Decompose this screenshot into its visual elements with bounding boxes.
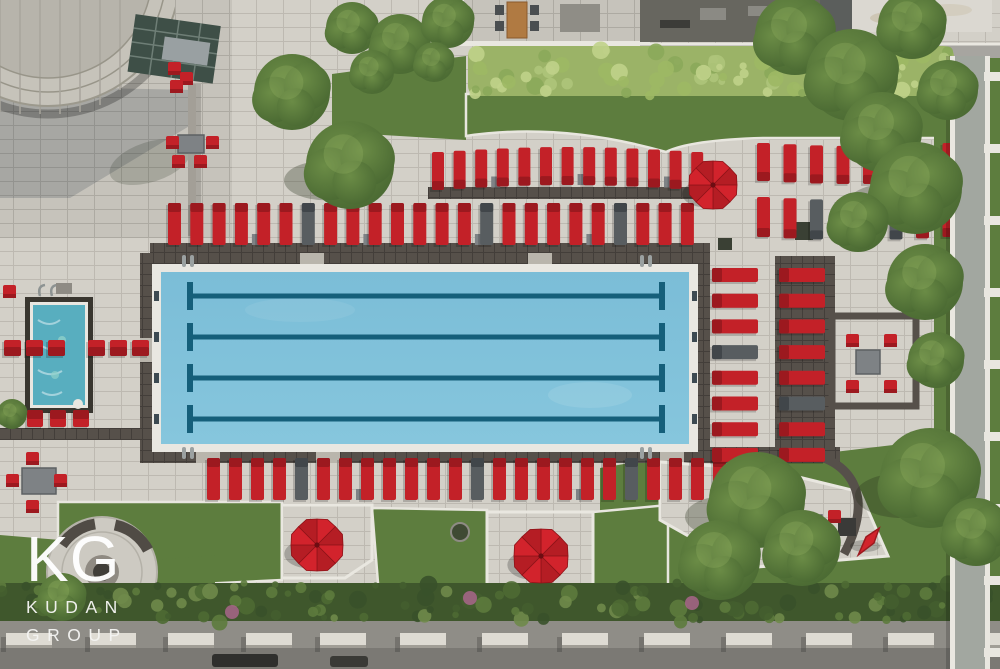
shrub [295, 582, 306, 593]
shrub [874, 592, 882, 600]
shrub [897, 584, 910, 597]
lounger-chair [581, 147, 595, 187]
shrub [285, 590, 292, 597]
lounger-chair [657, 203, 672, 247]
shrub [309, 590, 322, 603]
lounger-chair [646, 150, 660, 190]
shrub [255, 606, 267, 618]
grass-tuft [472, 85, 480, 93]
shrub [176, 598, 186, 608]
dining-chair [166, 136, 179, 149]
lounger-chair [24, 340, 43, 358]
lounger-chair [603, 148, 617, 188]
dining-chair [846, 334, 859, 347]
lounger-chair [535, 458, 550, 502]
lounger-chair [777, 397, 825, 413]
lounger-chair [601, 458, 616, 502]
scene-canvas [0, 0, 1000, 669]
dining-chair [26, 500, 39, 513]
grass-tuft [645, 91, 654, 100]
dining-chair [3, 285, 16, 298]
walkway-balcony [984, 432, 1000, 441]
lounger-chair [634, 203, 649, 247]
lounger-chair [777, 268, 825, 284]
grass-tuft [468, 46, 484, 62]
shrub [271, 610, 282, 621]
lounger-chair [782, 144, 797, 184]
walkway-balcony [984, 288, 1000, 297]
lounger-chair [293, 458, 308, 502]
dining-chair [206, 136, 219, 149]
lounger-chair [255, 203, 270, 247]
shrub [719, 602, 730, 613]
grass-tuft [540, 85, 552, 97]
lounger-chair [545, 203, 560, 247]
dining-chair [828, 510, 841, 523]
lounger-chair [777, 422, 825, 438]
grass-tuft [546, 61, 560, 75]
grass-tuft [696, 65, 711, 80]
shrub [399, 582, 406, 589]
shrub [835, 612, 843, 620]
potted-plant [451, 523, 469, 541]
walkway-balcony [984, 648, 1000, 657]
shrub [849, 611, 861, 623]
walkway-balcony [984, 72, 1000, 81]
patio-table [856, 350, 880, 374]
shrub [132, 588, 140, 596]
dining-chair [172, 155, 185, 168]
shrub [452, 605, 460, 613]
lounger-chair [501, 203, 516, 247]
lounger-chair [808, 199, 823, 241]
lounger-chair [403, 458, 418, 502]
lounger-chair [777, 319, 825, 335]
wooden-table [507, 2, 527, 38]
shrub [359, 613, 368, 622]
shrub [475, 597, 491, 613]
shrub [427, 606, 434, 613]
lounger-chair [495, 148, 509, 188]
lounger-chair [456, 203, 471, 247]
lounger-chair [411, 203, 426, 247]
parapet [455, 41, 650, 46]
shrub [616, 581, 630, 595]
dining-chair [884, 380, 897, 393]
shrub [774, 613, 784, 623]
shrub [745, 601, 759, 615]
lounger-chair [710, 268, 758, 284]
flowering-bush [463, 591, 477, 605]
lounger-chair [478, 203, 493, 247]
flowering-bush [685, 596, 699, 610]
grass-tuft [473, 61, 487, 75]
walkway-balcony [984, 216, 1000, 225]
grass-tuft [538, 50, 551, 63]
lounger-chair [777, 371, 825, 387]
shrub [230, 583, 239, 592]
shrub [452, 612, 459, 619]
shrub [537, 613, 549, 625]
dining-chair [54, 474, 67, 487]
lounger-chair [782, 198, 797, 240]
lounger-chair [710, 294, 758, 310]
lounger-chair [755, 197, 770, 239]
grass-tuft [658, 61, 674, 77]
grass-tuft [490, 77, 501, 88]
shrub [198, 611, 209, 622]
aerial-photo-pool-deck: KG KUDAN GROUP [0, 0, 1000, 669]
shrub [759, 606, 774, 621]
shrub [165, 613, 171, 619]
lounger-chair [227, 458, 242, 502]
lounger-chair [166, 203, 181, 247]
shrub [559, 596, 571, 608]
grass-tuft [561, 78, 572, 89]
dining-chair [168, 62, 181, 75]
grass-tuft [621, 88, 631, 98]
lounger-chair [710, 371, 758, 387]
lounger-chair [689, 458, 704, 502]
lounger-chair [516, 148, 530, 188]
walkway-balcony [984, 576, 1000, 585]
lounger-chair [447, 458, 462, 502]
grass-tuft [592, 42, 610, 60]
lounger-chair [205, 458, 220, 502]
lounger-chair [46, 340, 65, 358]
walkway-balcony [984, 144, 1000, 153]
shrub [688, 613, 698, 623]
lounger-chair [188, 203, 203, 247]
lounger-chair [2, 340, 21, 358]
shrub [824, 584, 838, 598]
lounger-chair [612, 203, 627, 247]
shrub [154, 582, 162, 590]
lounger-chair [337, 458, 352, 502]
lounger-chair [513, 458, 528, 502]
shrub [884, 594, 899, 609]
shrub [670, 600, 688, 618]
spa-cover [73, 399, 83, 409]
shrub [939, 602, 946, 609]
lounger-chair [579, 458, 594, 502]
lounger-chair [668, 151, 682, 191]
shrub [882, 616, 890, 624]
lounger-chair [679, 203, 694, 247]
lounger-chair [491, 458, 506, 502]
shrub [166, 587, 176, 597]
lounger-chair [777, 345, 825, 361]
lounger-chair [430, 152, 444, 192]
watermark-line2: GROUP [26, 625, 128, 646]
grass-tuft [502, 75, 516, 89]
shrub [902, 612, 911, 621]
shrub [441, 586, 453, 598]
lounger-chair [367, 203, 382, 247]
shrub [325, 590, 335, 600]
lounger-chair [130, 340, 149, 358]
lounger-chair [381, 458, 396, 502]
shrub [729, 602, 744, 617]
grass-tuft [768, 71, 784, 87]
lounger-chair [300, 203, 315, 247]
lounger-chair [777, 294, 825, 310]
shrub [522, 603, 534, 615]
lounger-chair [710, 345, 758, 361]
shrub [611, 599, 628, 616]
lounger-chair [322, 203, 337, 247]
shrub [780, 594, 797, 611]
lounger-chair [624, 148, 638, 188]
shrub [917, 605, 931, 619]
grass-tuft [521, 71, 532, 82]
lounger-chair [86, 340, 105, 358]
dining-chair [170, 80, 183, 93]
grass-tuft [618, 76, 629, 87]
lounger-chair [48, 410, 66, 429]
shrub [151, 599, 163, 611]
shrub [349, 591, 367, 609]
shrub [272, 581, 279, 588]
dining-chair [194, 155, 207, 168]
lounger-chair [755, 143, 770, 183]
watermark-line1: KUDAN [26, 597, 128, 618]
lounger-chair [211, 203, 226, 247]
walkway-balcony [984, 360, 1000, 369]
lounger-chair [278, 203, 293, 247]
lounger-chair [344, 203, 359, 247]
lounger-chair [590, 203, 605, 247]
shrub [417, 589, 435, 607]
shrub [884, 582, 893, 591]
shrub [597, 603, 606, 612]
parked-car [330, 656, 368, 667]
lounger-chair [359, 458, 374, 502]
shrub [321, 614, 327, 620]
roof-units [560, 4, 600, 32]
grass-tuft [534, 66, 543, 75]
shrub [372, 582, 378, 588]
grass-tuft [719, 73, 727, 81]
grass-tuft [740, 62, 747, 69]
shrub [212, 615, 228, 631]
grass-tuft [733, 76, 743, 86]
grass-tuft [648, 43, 665, 60]
shrub [674, 615, 687, 628]
shrub [266, 587, 277, 598]
shrub [495, 591, 504, 600]
shrub [503, 581, 521, 599]
shrub [637, 585, 649, 597]
lounger-chair [452, 151, 466, 191]
grass-tuft [716, 64, 722, 70]
shrub [241, 580, 248, 587]
shrub [841, 581, 849, 589]
lounger-chair [523, 203, 538, 247]
shrub [330, 614, 337, 621]
lounger-chair [315, 458, 330, 502]
dining-chair [6, 474, 19, 487]
lounger-chair [249, 458, 264, 502]
shrub [308, 607, 318, 617]
shrub [635, 596, 650, 611]
dining-chair [26, 452, 39, 465]
lounger-chair [434, 203, 449, 247]
dining-chair [846, 380, 859, 393]
lounger-chair [389, 203, 404, 247]
flowering-bush [225, 605, 239, 619]
patio-table [178, 135, 204, 153]
lounger-chair [557, 458, 572, 502]
shrub [202, 583, 218, 599]
kudan-group-watermark: KG KUDAN GROUP [26, 529, 128, 646]
lounger-chair [808, 145, 823, 185]
dining-chair [884, 334, 897, 347]
lounger-chair [710, 319, 758, 335]
lounger-chair [469, 458, 484, 502]
grass-tuft [677, 81, 692, 96]
lounger-chair [710, 397, 758, 413]
watermark-logo: KG [26, 529, 128, 590]
lounger-chair [71, 410, 89, 429]
lounger-chair [108, 340, 127, 358]
lounger-chair [25, 410, 43, 429]
lounger-chair [567, 203, 582, 247]
parked-car [212, 654, 278, 667]
lounger-chair [473, 150, 487, 190]
shrub [920, 587, 933, 600]
grass-tuft [899, 64, 906, 71]
lounger-chair [425, 458, 440, 502]
lounger-chair [645, 458, 660, 502]
lounger-chair [233, 203, 248, 247]
shrub [511, 607, 519, 615]
lounger-chair [623, 458, 638, 502]
lounger-chair [560, 147, 574, 187]
shrub [673, 579, 682, 588]
lounger-chair [538, 147, 552, 187]
grass-tuft [483, 86, 493, 96]
lounger-chair [667, 458, 682, 502]
lounger-chair [271, 458, 286, 502]
grass-tuft [911, 80, 919, 88]
patio-table [22, 468, 56, 494]
shrub [401, 601, 410, 610]
lounger-chair [710, 422, 758, 438]
